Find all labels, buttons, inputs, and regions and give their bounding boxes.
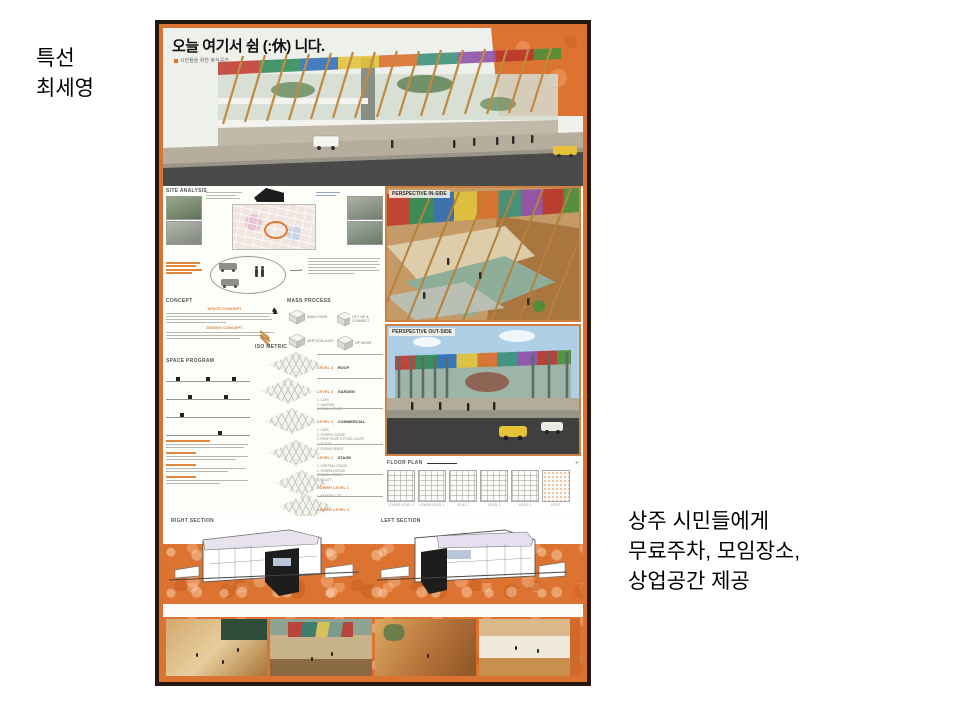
poster-title: 오늘 여기서 쉼 (:休) 니다.: [172, 35, 325, 56]
screen-stage-photo: [166, 619, 267, 676]
iso-cube-icon: [337, 336, 353, 350]
floor-plan-cell: LEVEL 3: [511, 470, 539, 507]
cafe-photo: [375, 619, 476, 676]
floor-plan-cell: LEVEL 2: [480, 470, 508, 507]
design-concept-label: DESIGN CONCEPT: [166, 325, 283, 330]
car-icon: [219, 263, 237, 270]
section-sketch: [166, 422, 250, 436]
main-building-rendering: 오늘 여기서 쉼 (:休) 니다. 시민들을 위한 휴식공간: [163, 28, 583, 186]
section-sketch: [166, 404, 250, 418]
annotation-note: 상주 시민들에게 무료주차, 모임장소, 상업공간 제공: [628, 507, 800, 596]
site-photo: [166, 196, 202, 220]
bottom-captions-row: LEVEL 1 - 2 SCREEN STAGE LEVEL 2 - 3 SMA…: [163, 604, 583, 617]
north-plus-mark: +: [575, 460, 579, 467]
site-map: [232, 204, 316, 250]
photo-caption: LEVEL 2 - 3 SMALL STAGE: [268, 604, 373, 617]
person-icon: [255, 269, 258, 277]
site-note-lines: [206, 190, 246, 201]
interior-photos-row: [163, 617, 583, 678]
floor-plan-cell: LOWER LEVEL 2: [387, 470, 415, 507]
floor-plan-cell: LEVEL 1: [449, 470, 477, 507]
perspective-inside-image: PERSPECTIVE IN-SIDE: [385, 186, 581, 322]
site-analysis-section: SITE ANALYSIS: [166, 188, 381, 250]
iso-plate: [269, 352, 323, 378]
floor-plan-thumb: [418, 470, 446, 502]
competition-poster: 오늘 여기서 쉼 (:休) 니다. 시민들을 위한 휴식공간 SITE ANAL…: [155, 20, 591, 686]
arrow-icon: [290, 270, 300, 271]
presentation-slide: 특선 최세영 상주 시민들에게 무료주차, 모임장소, 상업공간 제공: [0, 0, 960, 720]
mass-step: VERTICAL AXIS: [289, 334, 333, 348]
car-icon: [221, 279, 239, 286]
note-line-2: 무료주차, 모임장소,: [628, 537, 800, 567]
space-program-header: SPACE PROGRAM: [166, 358, 250, 364]
section-sketch: [166, 368, 250, 382]
space-program-text-block: [166, 476, 250, 484]
award-label: 특선: [36, 44, 94, 74]
perspective-outside-illustration: [387, 326, 579, 454]
photo-caption: LEVEL 2 - 3 PROP SHOP & FOOD COURT: [478, 604, 583, 617]
iso-level-label: LOWER LEVEL 1 1. PARKING LOT: [317, 474, 383, 499]
site-photo: [347, 196, 383, 220]
mass-process-section: MASS PROCESS MAIN CORE VERTICAL AXIS LIF…: [287, 298, 381, 356]
space-program-text-block: [166, 440, 250, 448]
floor-plan-row: LOWER LEVEL 2 LOWER LEVEL 1 LEVEL 1 LEVE…: [387, 470, 570, 507]
mass-process-header: MASS PROCESS: [287, 298, 381, 304]
users-vehicles-diagram: [210, 256, 286, 294]
iso-plate: [269, 440, 323, 466]
iso-metric-section: ISO METRIC LEVEL 4 ROOF LEVEL 3 GARDEN 1…: [255, 350, 385, 510]
animal-silhouette-icon: ♞: [271, 306, 279, 317]
poster-subtitle: 시민들을 위한 휴식공간: [180, 57, 229, 64]
sections-band: RIGHT SECTION LEFT SECTION: [163, 516, 583, 604]
iso-plate: [265, 408, 319, 434]
floor-plan-cell: LOWER LEVEL 1: [418, 470, 446, 507]
mass-step: UP MOVE: [337, 336, 372, 350]
floor-plan-thumb: [387, 470, 415, 502]
photo-caption: LEVEL 2 - 3 CAFE: [373, 604, 478, 617]
site-highlight-ring: [264, 221, 288, 239]
section-sketch: [166, 386, 250, 400]
floor-plan-header: FLOOR PLAN: [387, 460, 423, 466]
left-section-drawing: [377, 524, 567, 602]
perspective-inside-label: PERSPECTIVE IN-SIDE: [389, 190, 450, 198]
iso-plate: [261, 378, 315, 404]
iso-level-label: LEVEL 3 GARDEN 1. CAFE 2. GARDEN 3. SMAL…: [317, 378, 383, 412]
floor-plan-thumb: [542, 470, 570, 502]
note-line-3: 상업공간 제공: [628, 567, 800, 597]
iso-cube-icon: [337, 312, 350, 326]
note-line-1: 상주 시민들에게: [628, 507, 800, 537]
iso-metric-header: ISO METRIC: [255, 344, 287, 350]
concept-text-lines: [166, 313, 283, 324]
small-stage-photo: [270, 619, 371, 676]
iso-level-label: LEVEL 4 ROOF: [317, 354, 383, 374]
perspective-outside-image: PERSPECTIVE OUT-SIDE: [385, 324, 581, 456]
concept-header: CONCEPT: [166, 298, 283, 304]
right-section-drawing: [169, 524, 359, 602]
site-paragraph-lines: [308, 256, 381, 276]
floor-plan-section: FLOOR PLAN + LOWER LEVEL 2 LOWER LEVEL 1…: [385, 458, 581, 514]
floor-plan-cell: ROOF: [542, 470, 570, 507]
program-diagram-row: [166, 252, 381, 296]
floor-plan-thumb: [480, 470, 508, 502]
person-icon: [261, 269, 264, 277]
poster-subtitle-row: 시민들을 위한 휴식공간: [174, 57, 229, 64]
space-program-section: SPACE PROGRAM: [166, 358, 250, 510]
space-program-text-block: [166, 452, 250, 460]
perspective-inside-illustration: [387, 188, 579, 320]
mass-step: MAIN CORE: [289, 310, 327, 324]
author-name: 최세영: [36, 74, 94, 104]
space-concept-label: SPACE CONCEPT: [166, 306, 283, 311]
award-author-caption: 특선 최세영: [36, 44, 94, 104]
perspective-outside-label: PERSPECTIVE OUT-SIDE: [389, 328, 455, 336]
poster-content: 오늘 여기서 쉼 (:休) 니다. 시민들을 위한 휴식공간 SITE ANAL…: [163, 28, 583, 678]
photo-caption: LEVEL 1 - 2 SCREEN STAGE: [163, 604, 268, 617]
site-photo: [347, 221, 383, 245]
floor-plan-thumb: [511, 470, 539, 502]
wood-sticks-icon: [259, 334, 273, 344]
diagram-caption-lines: [166, 260, 204, 276]
prop-shop-photo: [479, 619, 580, 676]
subtitle-tick-icon: [174, 59, 178, 63]
site-photo: [166, 221, 202, 245]
iso-cube-icon: [289, 334, 305, 348]
floor-plan-thumb: [449, 470, 477, 502]
space-program-text-block: [166, 464, 250, 472]
iso-cube-icon: [289, 310, 305, 324]
scale-bar: [427, 463, 457, 464]
site-legend-lines: [316, 190, 342, 198]
mass-step: LIFT UP & CONNECT: [337, 312, 381, 326]
